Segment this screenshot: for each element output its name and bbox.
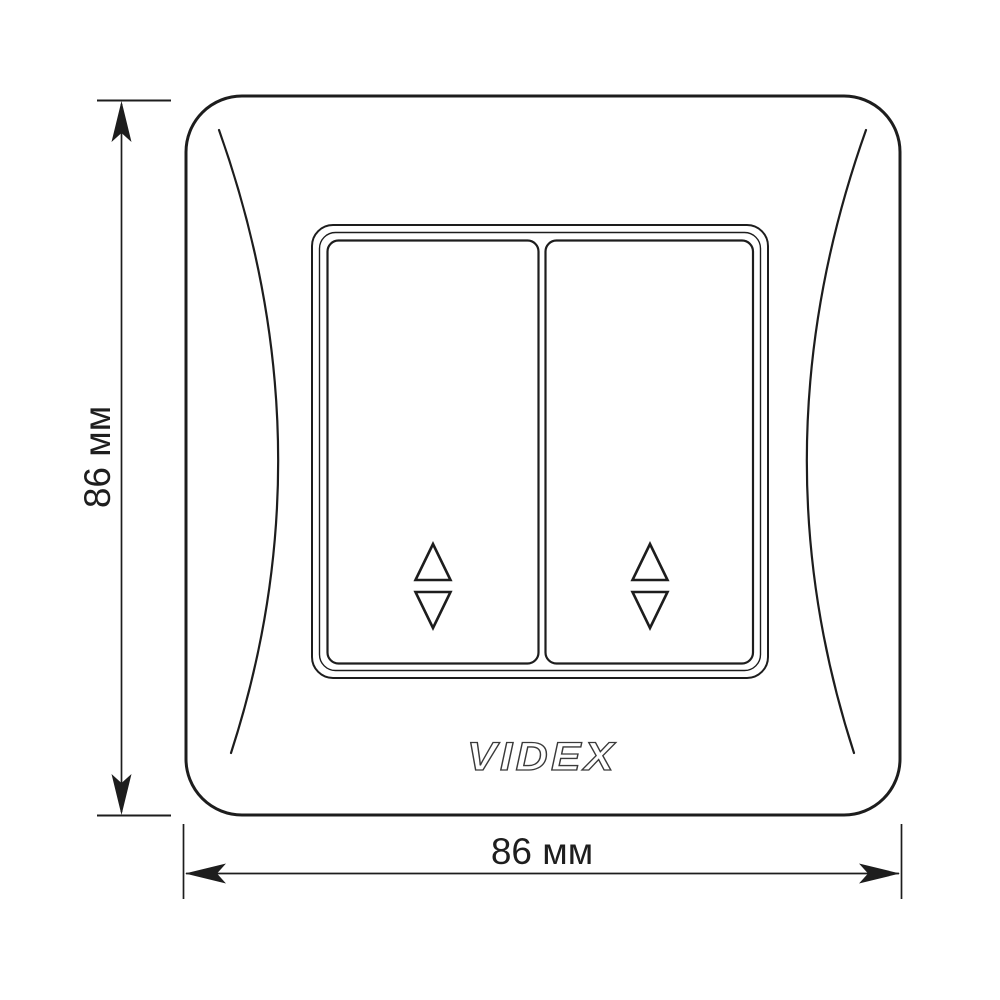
drawing-canvas: VIDEX 86 мм 86 мм [0, 0, 1000, 1000]
brand-logo: VIDEX [467, 735, 617, 779]
width-dimension-label: 86 мм [491, 831, 593, 872]
width-dimension: 86 мм [184, 824, 902, 899]
height-dimension: 86 мм [77, 101, 171, 816]
height-dimension-label: 86 мм [77, 406, 118, 508]
rocker-left [328, 241, 539, 664]
dimension-drawing: VIDEX 86 мм 86 мм [0, 0, 1000, 1000]
rocker-right [546, 241, 754, 664]
switch-module [312, 225, 768, 678]
